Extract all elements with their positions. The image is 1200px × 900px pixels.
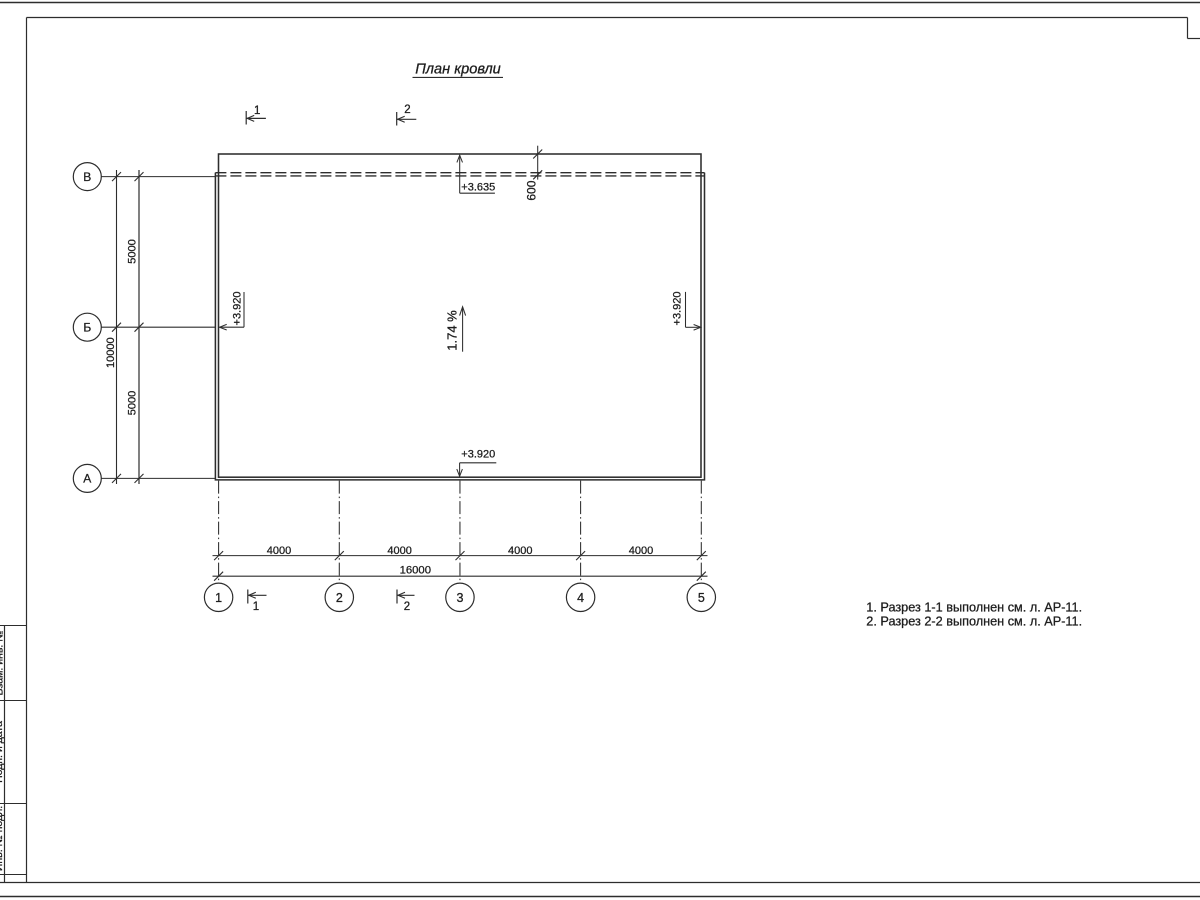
svg-text:4: 4 xyxy=(577,591,584,605)
svg-text:1: 1 xyxy=(215,591,222,605)
svg-text:+3.920: +3.920 xyxy=(232,292,244,326)
svg-text:16000: 16000 xyxy=(400,564,431,576)
svg-text:План кровли: План кровли xyxy=(415,62,501,78)
svg-text:2: 2 xyxy=(336,591,343,605)
svg-text:1: 1 xyxy=(253,601,259,613)
svg-text:+3.635: +3.635 xyxy=(461,181,495,193)
svg-text:10000: 10000 xyxy=(105,337,117,368)
svg-text:4000: 4000 xyxy=(508,545,532,557)
svg-text:Взам. инв. №: Взам. инв. № xyxy=(0,630,6,695)
svg-text:2: 2 xyxy=(404,601,410,613)
svg-text:5000: 5000 xyxy=(127,239,139,263)
svg-text:2: 2 xyxy=(404,104,410,116)
svg-text:А: А xyxy=(83,472,91,486)
svg-text:2. Разрез 2-2 выполнен см. л.: 2. Разрез 2-2 выполнен см. л. АР-11. xyxy=(866,615,1082,629)
svg-text:4000: 4000 xyxy=(387,545,411,557)
svg-text:В: В xyxy=(83,170,91,184)
svg-text:5000: 5000 xyxy=(127,391,139,415)
svg-text:+3.920: +3.920 xyxy=(461,449,495,461)
svg-text:3: 3 xyxy=(456,591,463,605)
svg-text:Б: Б xyxy=(83,320,91,334)
svg-text:+3.920: +3.920 xyxy=(672,292,684,326)
svg-text:4000: 4000 xyxy=(267,545,291,557)
svg-text:Подп. и дата: Подп. и дата xyxy=(0,721,5,783)
svg-text:Инв. № подл.: Инв. № подл. xyxy=(0,806,5,871)
svg-text:600: 600 xyxy=(525,180,539,200)
svg-text:1. Разрез 1-1 выполнен см. л.: 1. Разрез 1-1 выполнен см. л. АР-11. xyxy=(866,600,1082,614)
svg-text:5: 5 xyxy=(698,591,705,605)
svg-text:4000: 4000 xyxy=(629,545,653,557)
svg-text:1: 1 xyxy=(254,105,260,117)
svg-text:1.74 %: 1.74 % xyxy=(444,310,459,351)
